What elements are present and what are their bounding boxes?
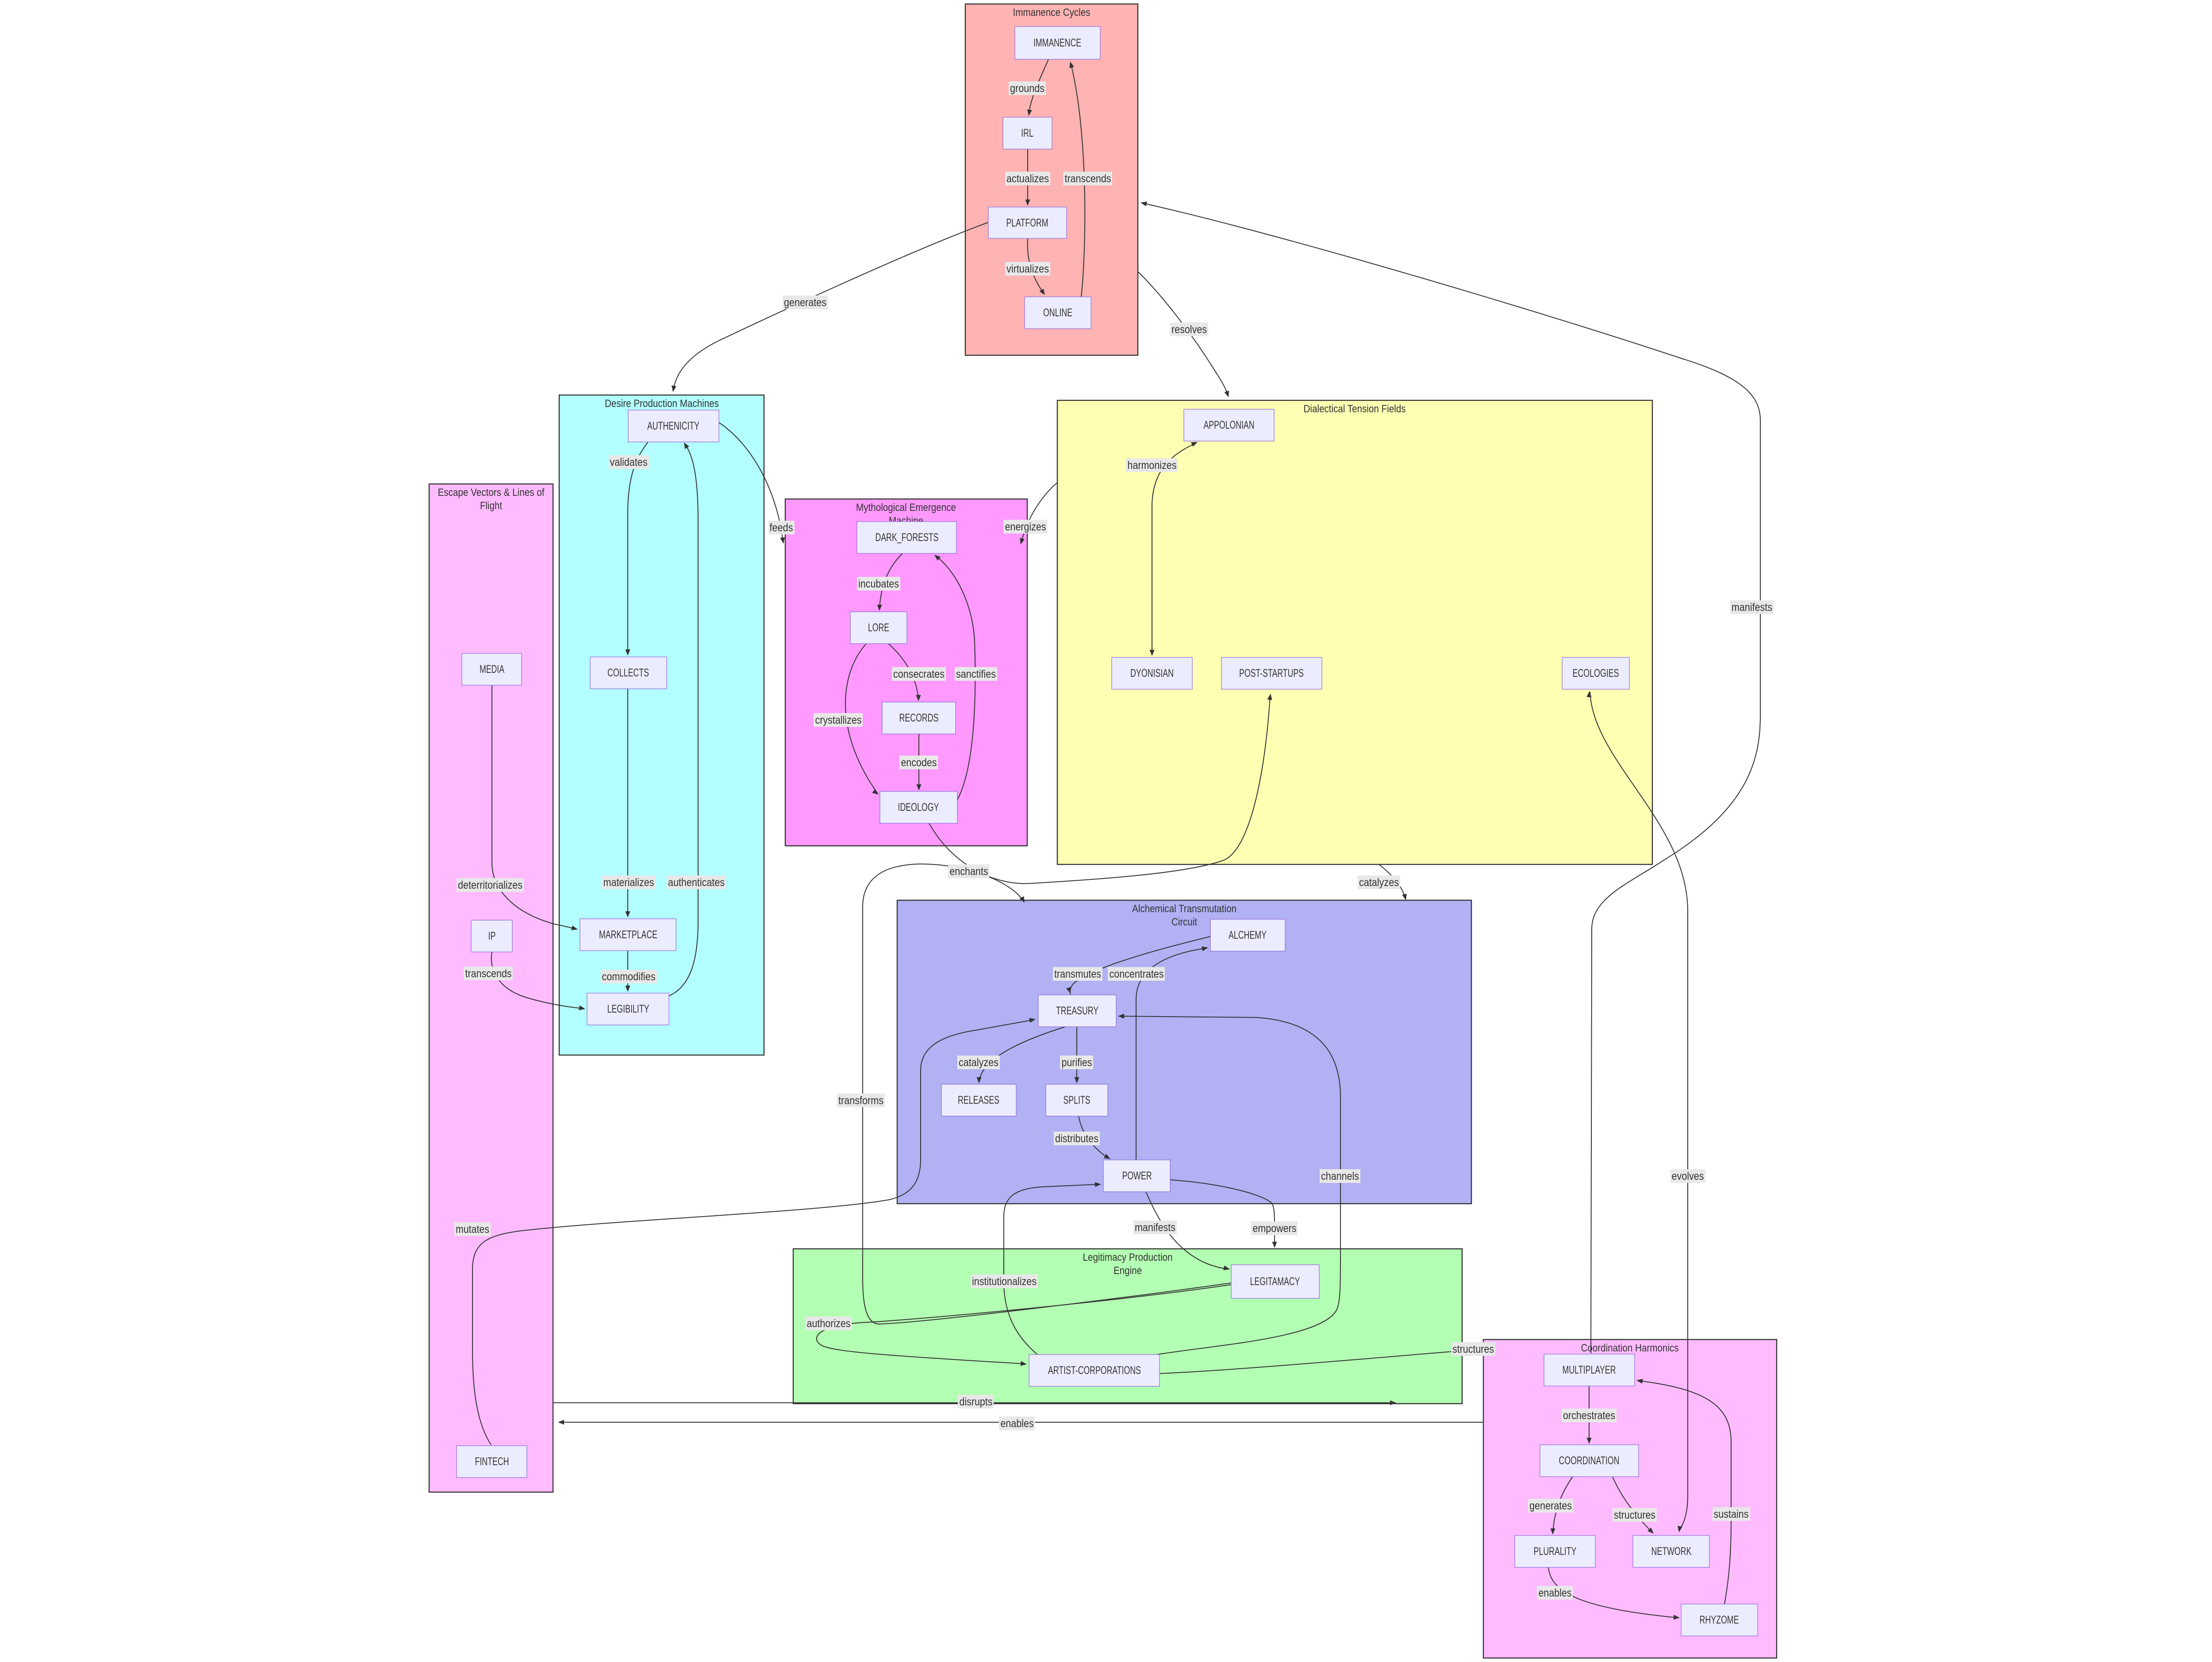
- svg-text:AUTHENICITY: AUTHENICITY: [647, 420, 699, 432]
- svg-text:ALCHEMY: ALCHEMY: [1229, 929, 1267, 941]
- svg-text:actualizes: actualizes: [1006, 173, 1049, 185]
- svg-text:channels: channels: [1321, 1170, 1359, 1182]
- svg-text:materializes: materializes: [603, 876, 654, 889]
- svg-text:POWER: POWER: [1122, 1170, 1152, 1182]
- svg-text:manifests: manifests: [1732, 601, 1772, 614]
- svg-text:MARKETPLACE: MARKETPLACE: [599, 929, 657, 941]
- svg-text:RELEASES: RELEASES: [958, 1094, 999, 1106]
- svg-text:ECOLOGIES: ECOLOGIES: [1573, 667, 1619, 679]
- svg-text:Alchemical Transmutation: Alchemical Transmutation: [1132, 903, 1237, 915]
- svg-text:generates: generates: [1529, 1500, 1572, 1512]
- svg-text:RECORDS: RECORDS: [899, 712, 939, 724]
- svg-text:virtualizes: virtualizes: [1006, 263, 1049, 275]
- svg-text:consecrates: consecrates: [893, 668, 945, 680]
- svg-text:transforms: transforms: [838, 1094, 883, 1107]
- svg-text:sustains: sustains: [1714, 1508, 1749, 1520]
- svg-text:Engine: Engine: [1114, 1265, 1142, 1277]
- svg-text:enables: enables: [1001, 1417, 1034, 1430]
- svg-text:MULTIPLAYER: MULTIPLAYER: [1563, 1364, 1616, 1376]
- svg-text:APPOLONIAN: APPOLONIAN: [1204, 419, 1255, 431]
- svg-text:incubates: incubates: [858, 578, 899, 590]
- svg-text:distributes: distributes: [1055, 1132, 1098, 1145]
- svg-text:crystallizes: crystallizes: [815, 714, 862, 726]
- svg-text:IDEOLOGY: IDEOLOGY: [898, 801, 939, 814]
- svg-text:institutionalizes: institutionalizes: [972, 1275, 1037, 1288]
- svg-text:mutates: mutates: [456, 1223, 489, 1236]
- svg-text:PLATFORM: PLATFORM: [1006, 217, 1048, 229]
- svg-text:DYONISIAN: DYONISIAN: [1130, 667, 1174, 679]
- svg-text:validates: validates: [610, 456, 648, 468]
- svg-text:PLURALITY: PLURALITY: [1534, 1545, 1577, 1558]
- svg-text:concentrates: concentrates: [1110, 968, 1164, 980]
- svg-text:LEGITAMACY: LEGITAMACY: [1250, 1275, 1300, 1288]
- svg-text:encodes: encodes: [901, 756, 937, 769]
- svg-text:Dialectical Tension Fields: Dialectical Tension Fields: [1304, 403, 1406, 415]
- svg-text:TREASURY: TREASURY: [1056, 1005, 1098, 1017]
- svg-text:deterritorializes: deterritorializes: [458, 879, 522, 891]
- svg-text:empowers: empowers: [1253, 1222, 1297, 1235]
- svg-text:catalyzes: catalyzes: [1359, 876, 1399, 889]
- svg-text:IRL: IRL: [1021, 127, 1033, 139]
- svg-text:harmonizes: harmonizes: [1128, 459, 1177, 472]
- svg-text:Escape Vectors & Lines of: Escape Vectors & Lines of: [438, 487, 545, 499]
- svg-text:structures: structures: [1614, 1509, 1655, 1521]
- svg-text:resolves: resolves: [1171, 323, 1207, 336]
- svg-text:LORE: LORE: [868, 622, 889, 634]
- svg-text:structures: structures: [1452, 1343, 1494, 1355]
- svg-text:catalyzes: catalyzes: [959, 1056, 998, 1069]
- svg-text:IMMANENCE: IMMANENCE: [1033, 37, 1081, 49]
- svg-text:disrupts: disrupts: [960, 1396, 993, 1408]
- svg-text:ONLINE: ONLINE: [1043, 307, 1072, 319]
- svg-text:transcends: transcends: [465, 967, 512, 980]
- svg-text:SPLITS: SPLITS: [1064, 1094, 1091, 1106]
- svg-text:Immanence Cycles: Immanence Cycles: [1013, 7, 1091, 19]
- svg-text:purifies: purifies: [1062, 1056, 1092, 1069]
- svg-text:authenticates: authenticates: [668, 876, 725, 889]
- svg-text:LEGIBILITY: LEGIBILITY: [607, 1003, 649, 1015]
- svg-text:transcends: transcends: [1065, 173, 1111, 185]
- svg-text:DARK_FORESTS: DARK_FORESTS: [876, 531, 939, 544]
- svg-text:enchants: enchants: [950, 865, 988, 878]
- svg-text:Circuit: Circuit: [1171, 916, 1197, 928]
- svg-text:Flight: Flight: [480, 500, 502, 512]
- svg-text:feeds: feeds: [770, 522, 793, 534]
- svg-text:Coordination Harmonics: Coordination Harmonics: [1581, 1342, 1679, 1354]
- svg-text:manifests: manifests: [1135, 1221, 1175, 1234]
- svg-text:RHYZOME: RHYZOME: [1700, 1614, 1739, 1626]
- svg-text:IP: IP: [488, 930, 496, 942]
- svg-text:ARTIST-CORPORATIONS: ARTIST-CORPORATIONS: [1048, 1364, 1141, 1377]
- svg-text:sanctifies: sanctifies: [956, 668, 996, 680]
- svg-text:transmutes: transmutes: [1054, 968, 1101, 980]
- svg-text:commodifies: commodifies: [602, 971, 656, 983]
- svg-text:MEDIA: MEDIA: [480, 663, 504, 676]
- svg-text:evolves: evolves: [1672, 1170, 1704, 1182]
- svg-text:POST-STARTUPS: POST-STARTUPS: [1239, 667, 1304, 679]
- svg-text:orchestrates: orchestrates: [1563, 1409, 1615, 1422]
- svg-text:COLLECTS: COLLECTS: [607, 667, 649, 679]
- svg-text:energizes: energizes: [1005, 521, 1046, 533]
- svg-text:NETWORK: NETWORK: [1651, 1545, 1692, 1558]
- svg-text:COORDINATION: COORDINATION: [1559, 1455, 1620, 1467]
- svg-text:grounds: grounds: [1010, 82, 1045, 95]
- svg-text:FINTECH: FINTECH: [475, 1455, 509, 1468]
- svg-text:authorizes: authorizes: [807, 1317, 851, 1330]
- svg-text:Mythological Emergence: Mythological Emergence: [856, 502, 956, 514]
- svg-text:Legitimacy Production: Legitimacy Production: [1083, 1251, 1173, 1263]
- svg-text:Desire Production Machines: Desire Production Machines: [605, 398, 719, 410]
- svg-text:enables: enables: [1539, 1587, 1572, 1599]
- svg-text:generates: generates: [784, 296, 826, 309]
